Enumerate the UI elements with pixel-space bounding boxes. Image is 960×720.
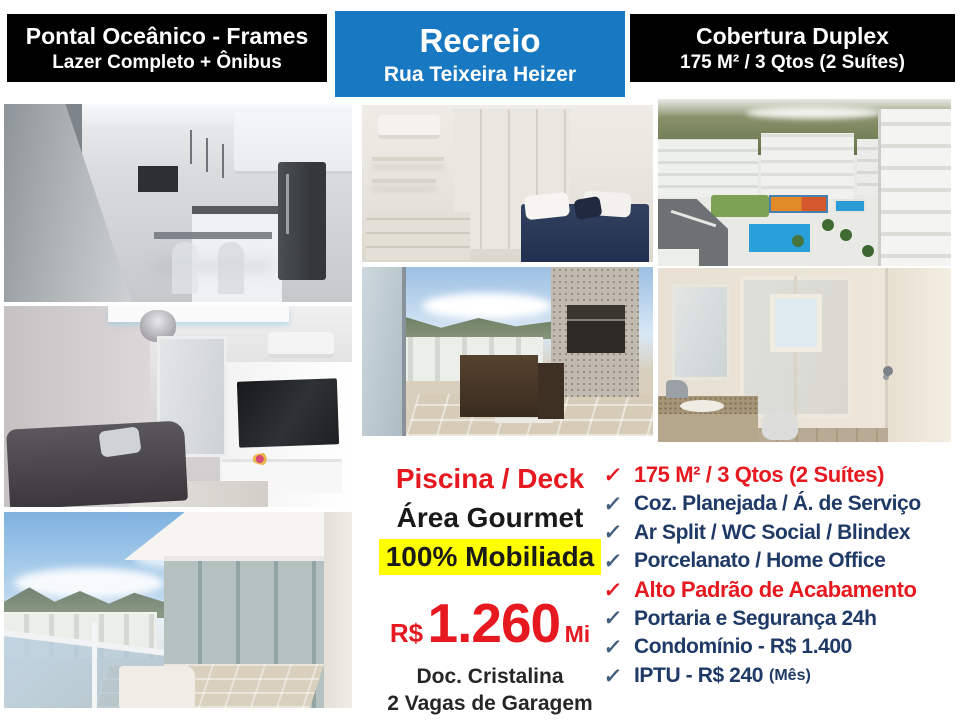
building-name: Pontal Oceânico - Frames: [26, 22, 308, 51]
feature-pool-deck: Piscina / Deck: [365, 462, 615, 496]
dining-chair: [172, 242, 198, 294]
checklist-item-label: 175 M² / 3 Qtos (2 Suítes): [634, 462, 884, 488]
photo-aerial-condo: [658, 99, 951, 266]
price-unit: Mi: [565, 621, 591, 647]
apartment-block: [658, 139, 758, 197]
door-handle: [883, 366, 893, 376]
dining-chair: [218, 242, 244, 294]
kids-pool: [834, 199, 866, 213]
photo-bathroom: [658, 268, 951, 442]
apartment-block: [761, 133, 855, 199]
pillow: [524, 192, 570, 220]
railing-post: [92, 622, 97, 708]
photo-terrace-bbq: [362, 267, 653, 436]
price: R$ 1.260 Mi: [365, 591, 615, 655]
price-block: Piscina / Deck Área Gourmet 100% Mobilia…: [365, 462, 615, 717]
features-checklist: ✓ 175 M² / 3 Qtos (2 Suítes) ✓ Coz. Plan…: [596, 461, 958, 691]
bathroom-door: [885, 268, 951, 442]
listing-flyer: Pontal Oceânico - Frames Lazer Completo …: [0, 0, 960, 720]
faucet: [666, 380, 688, 398]
pendant-lights: [190, 130, 192, 164]
header-neighborhood: Recreio Rua Teixeira Heizer: [335, 11, 625, 97]
toilet: [762, 410, 798, 440]
property-specs: 175 M² / 3 Qtos (2 Suítes): [680, 51, 905, 75]
glass-stair-panel: [4, 104, 132, 302]
check-icon: ✓: [594, 549, 636, 574]
checklist-item-label: Alto Padrão de Acabamento: [634, 577, 917, 603]
checklist-item: ✓ Ar Split / WC Social / Blindex: [596, 518, 958, 547]
outdoor-sofa: [119, 666, 195, 708]
checklist-item-label: IPTU - R$ 240: [634, 664, 763, 688]
sofa: [6, 420, 188, 507]
flat-tv: [237, 378, 339, 447]
price-currency: R$: [390, 618, 423, 648]
cove-lighting: [108, 306, 289, 322]
check-icon: ✓: [594, 463, 636, 488]
photo-kitchen-living: [4, 104, 352, 302]
sofa-pillow: [98, 426, 141, 457]
checklist-item-label: Coz. Planejada / Á. de Serviço: [634, 492, 921, 516]
glass-dining-table: [154, 232, 272, 239]
checklist-item: ✓ Alto Padrão de Acabamento: [596, 576, 958, 605]
checklist-item-label: Condomínio - R$ 1.400: [634, 635, 852, 659]
checklist-item: ✓ 175 M² / 3 Qtos (2 Suítes): [596, 461, 958, 490]
sports-court: [769, 195, 828, 213]
checklist-item-label: Ar Split / WC Social / Blindex: [634, 521, 910, 545]
street-address: Rua Teixeira Heizer: [384, 62, 576, 88]
checklist-item-label: Portaria e Segurança 24h: [634, 607, 877, 631]
bathroom-window: [770, 294, 822, 352]
wall-shelf: [372, 179, 436, 183]
mirror-cabinet: [672, 284, 730, 380]
bar-table: [460, 355, 538, 417]
swimming-pool: [746, 221, 813, 255]
air-conditioner: [268, 332, 334, 358]
cloud: [746, 107, 881, 119]
photo-living-room: [4, 306, 352, 507]
low-building: [658, 249, 699, 266]
checklist-item-suffix: (Mês): [769, 667, 811, 685]
photo-balcony-view: [4, 512, 352, 708]
air-conditioner: [378, 115, 440, 139]
check-icon: ✓: [594, 520, 636, 545]
lawn: [711, 195, 770, 217]
neighborhood-name: Recreio: [419, 20, 540, 61]
photo-bedroom: [362, 105, 653, 262]
charcoal-grill: [567, 305, 625, 353]
check-icon: ✓: [594, 664, 636, 689]
check-icon: ✓: [594, 578, 636, 603]
checklist-item: ✓ Porcelanato / Home Office: [596, 547, 958, 576]
roof-edge: [124, 512, 326, 560]
check-icon: ✓: [594, 492, 636, 517]
flower-vase: [252, 453, 278, 465]
property-type: Cobertura Duplex: [696, 22, 889, 51]
checklist-item: ✓ IPTU - R$ 240 (Mês): [596, 662, 958, 691]
wall-shelf: [372, 157, 444, 161]
dresser: [366, 212, 470, 260]
building-amenities: Lazer Completo + Ônibus: [52, 51, 282, 75]
feature-gourmet: Área Gourmet: [365, 501, 615, 535]
wall-tv: [138, 166, 178, 192]
check-icon: ✓: [594, 606, 636, 631]
right-wall: [324, 512, 352, 708]
checklist-item-label: Porcelanato / Home Office: [634, 549, 885, 573]
checklist-item: ✓ Portaria e Segurança 24h: [596, 604, 958, 633]
check-icon: ✓: [594, 635, 636, 660]
cloud: [422, 293, 552, 319]
refrigerator: [278, 162, 326, 280]
header-property-type: Cobertura Duplex 175 M² / 3 Qtos (2 Suít…: [630, 14, 955, 82]
price-amount: 1.260: [428, 592, 561, 654]
palm-trees: [822, 219, 834, 231]
bar-stool: [538, 363, 564, 419]
glass-panel: [362, 267, 406, 436]
doc-status: Doc. Cristalina: [365, 663, 615, 690]
feature-furnished-highlight: 100% Mobiliada: [379, 539, 602, 575]
header-building-name: Pontal Oceânico - Frames Lazer Completo …: [7, 14, 327, 82]
checklist-item: ✓ Condomínio - R$ 1.400: [596, 633, 958, 662]
sink: [680, 400, 724, 412]
checklist-item: ✓ Coz. Planejada / Á. de Serviço: [596, 490, 958, 519]
parking-info: 2 Vagas de Garagem: [365, 690, 615, 717]
vanity-cabinet: [658, 414, 758, 442]
foreground-building: [878, 109, 951, 266]
